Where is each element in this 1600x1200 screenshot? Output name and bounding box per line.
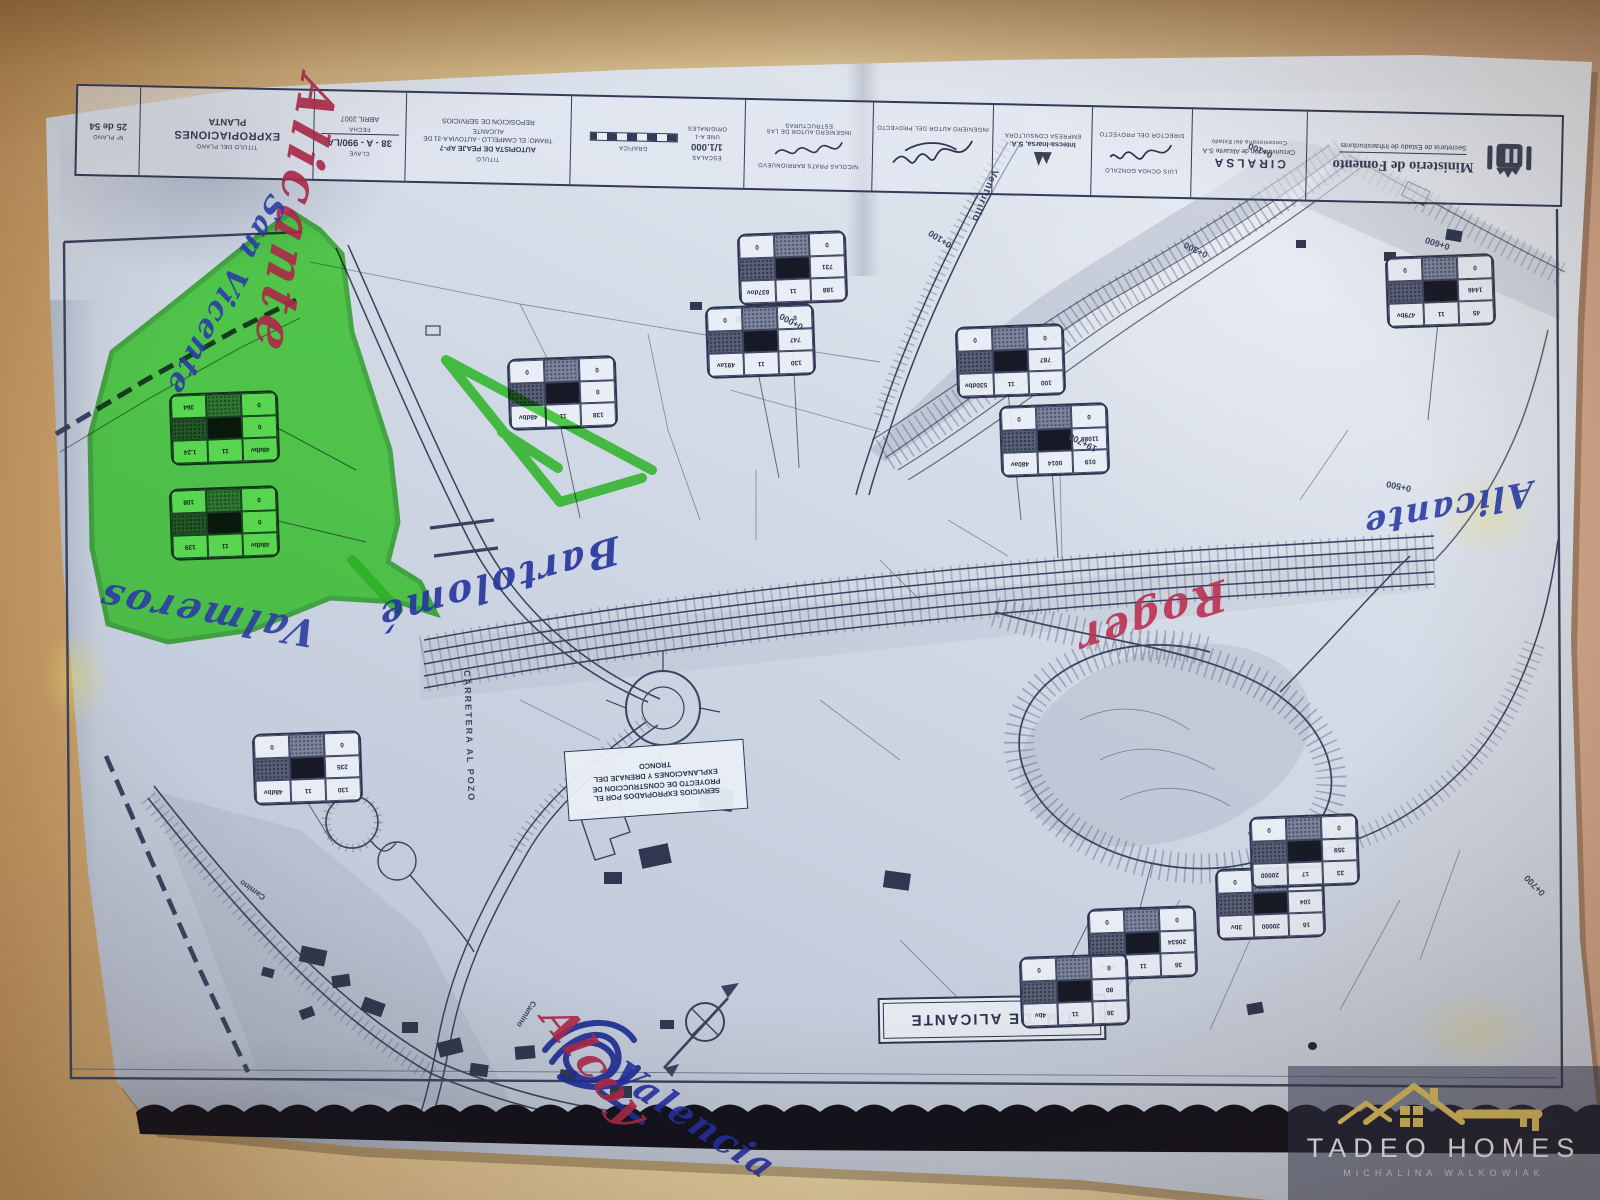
parcel-cell [1287, 839, 1323, 863]
parcel-cell: 491av [708, 353, 744, 377]
parcel-cell [1422, 256, 1458, 280]
parcel-cell [255, 757, 291, 781]
parcel-cell: 20634 [1160, 930, 1196, 954]
parcel-cell: 11 [775, 279, 811, 303]
project-line2: TRAMO: EL CAMPELLO - AUTOVIA A-31 DE ALI… [408, 125, 568, 144]
parcel-cell [743, 329, 779, 353]
parcel-cell: 36 [1092, 1000, 1128, 1024]
ministry-subtitle: Secretaría de Estado de Infraestructuras [1340, 140, 1466, 151]
parcel-cell: 48dbv [510, 405, 546, 429]
parcel-cell: 130 [325, 777, 361, 801]
parcel-cell [206, 393, 242, 417]
parcel-cell: 11 [207, 534, 243, 558]
parcel-cell: 139 [172, 535, 208, 559]
parcel-cell [544, 358, 580, 382]
parcel-cell [290, 756, 326, 780]
plan-title-line1: EXPROPIACIONES [174, 128, 280, 142]
structures-engineer-name: NICOLAS PRATS BARRIONUEVO [758, 161, 859, 169]
parcel-cell: 48dbv [255, 780, 291, 804]
project-line3: REPOSICION DE SERVICIOS [442, 115, 535, 125]
signature-structures [773, 135, 843, 160]
parcel-cell: 11 [1125, 954, 1161, 978]
parcel-cell [1057, 979, 1093, 1003]
parcel-cell: 480av [1002, 452, 1038, 476]
parcel-cell: 0 [1251, 818, 1287, 842]
parcel-cell [1423, 279, 1459, 303]
parcel-cell: 45 [1458, 300, 1494, 324]
date-label: FECHA [349, 126, 371, 132]
brand-name: TADEO HOMES [1307, 1134, 1582, 1164]
ministry-name: Ministerio de Fomento [1332, 156, 1473, 176]
parcel-cell: 11 [545, 404, 581, 428]
parcel-cell: 0 [579, 357, 615, 381]
author-role: INGENIERO AUTOR DEL PROYECTO [877, 124, 989, 132]
parcel-cell [545, 381, 581, 405]
spain-coat-of-arms-icon [1483, 137, 1536, 182]
director-name: LUIS OCHOA GONZALO [1105, 166, 1178, 174]
sheet-number-value: 25 de 54 [89, 121, 127, 133]
parcel-cell: 11 [290, 779, 326, 803]
parcel-cell: 0 [1089, 910, 1125, 934]
structures-engineer-role: INGENIERO AUTOR DE LAS ESTRUCTURAS [748, 121, 871, 136]
parcel-cell: 36 [1160, 952, 1196, 976]
parcel-cell: 479bv [1388, 303, 1424, 327]
parcel-cell [289, 733, 325, 757]
parcel-cell [1036, 405, 1072, 429]
parcel-cell: 48dbv [242, 437, 278, 461]
plan-title-label: TITULO DEL PLANO [196, 143, 257, 150]
parcel-cell [1125, 931, 1161, 955]
titleblock-consultant: Intecsa-Inarsa, S.A. EMPRESA CONSULTORA [991, 105, 1093, 195]
consultant-role: EMPRESA CONSULTORA [1004, 132, 1081, 140]
parcel-cell [992, 326, 1028, 350]
parcel-cell: 108 [171, 490, 207, 514]
parcel-cell [774, 233, 810, 257]
parcel-cell: 0 [1457, 255, 1493, 279]
parcel-cell [1022, 980, 1058, 1004]
parcel-cell: 747 [778, 328, 814, 352]
parcel-cell: 104 [1288, 890, 1324, 914]
parcel-cell: 0 [1321, 815, 1357, 839]
parcel-cell [740, 257, 776, 281]
scales-note2: ORIGINALES [687, 125, 727, 132]
parcel-cell: 0 [509, 360, 545, 384]
parcel-cell [206, 488, 242, 512]
parcel-cell: 100 [1028, 370, 1064, 394]
parcel-cell: 138 [580, 402, 616, 426]
parcel-cell: 0 [707, 308, 743, 332]
parcel-cell: 731 [810, 255, 846, 279]
parcel-cell [172, 417, 208, 441]
director-role: DIRECTOR DEL PROYECTO [1099, 130, 1184, 138]
parcel-table: 001446479bv1145 [1385, 253, 1496, 329]
dark-speck [1308, 1042, 1317, 1050]
parcel-cell: 0014 [1037, 451, 1073, 475]
parcel-cell: 11 [1057, 1002, 1093, 1026]
titleblock-scales: ESCALAS 1/1.000 UNE A-1 ORIGINALES GRAFI… [569, 96, 745, 188]
parcel-cell [708, 330, 744, 354]
parcel-cell: 0 [1159, 907, 1195, 931]
parcel-cell: 4bv [1022, 1003, 1058, 1027]
signature-author [889, 132, 976, 172]
scales-value: 1/1.000 [691, 141, 723, 153]
parcel-table: 108001391148dbv [169, 485, 280, 561]
parcel-cell: 0 [580, 380, 616, 404]
plan-title-line2: PLANTA [208, 116, 246, 128]
parcel-table: 00787530dbv11100 [955, 323, 1066, 399]
scales-note1: UNE A-1 [694, 133, 719, 140]
parcel-cell: 0 [254, 735, 290, 759]
parcel-cell: 11 [993, 372, 1029, 396]
parcel-cell [172, 512, 208, 536]
titleblock-project-author: INGENIERO AUTOR DEL PROYECTO [871, 103, 992, 193]
parcel-cell: 20000 [1253, 914, 1289, 938]
parcel-cell: 11 [207, 439, 243, 463]
parcel-cell [993, 349, 1029, 373]
parcel-cell [1002, 429, 1038, 453]
brand-subtitle: MICHALINA WALKOWIAK [1343, 1168, 1544, 1178]
signature-director [1108, 138, 1175, 165]
date-value: ABRIL 2007 [341, 115, 380, 125]
photo-scene: Nº PLANO 25 de 54 TITULO DEL PLANO EXPRO… [0, 0, 1600, 1200]
parcel-cell: 0 [242, 415, 278, 439]
parcel-cell [1252, 840, 1288, 864]
parcel-cell: 0 [1071, 404, 1107, 428]
titleblock-ministry: Ministerio de Fomento Secretaría de Esta… [1305, 112, 1562, 205]
parcel-cell: 48dbv [242, 532, 278, 556]
graphic-scale-bar [589, 132, 677, 143]
parcel-cell: 0 [1387, 258, 1423, 282]
parcel-cell: 11 [1423, 302, 1459, 326]
consultant-name: Intecsa-Inarsa, S.A. [1009, 140, 1075, 150]
parcel-cell [742, 306, 778, 330]
parcel-table: 00731637dov11188 [737, 230, 848, 306]
parcel-cell: 1446 [1458, 278, 1494, 302]
parcel-cell [775, 256, 811, 280]
services-note-box: SERVICIOS EXPROPIADOS POR EL PROYECTO DE… [564, 739, 748, 821]
parcel-cell [1286, 816, 1322, 840]
parcel-table: 00747491av11130 [705, 303, 816, 379]
parcel-cell: 637dov [740, 280, 776, 304]
parcel-cell: 0 [957, 328, 993, 352]
titleblock-director: LUIS OCHOA GONZALO DIRECTOR DEL PROYECTO [1090, 107, 1192, 197]
parcel-cell: 0 [241, 392, 277, 416]
parcel-cell: 17 [1287, 862, 1323, 886]
parcel-cell [510, 382, 546, 406]
parcel-cell [207, 511, 243, 535]
titleblock-ciralsa: CIRALSA Circunvalación de Alicante S.A C… [1190, 109, 1307, 199]
parcel-cell: 235 [325, 755, 361, 779]
graphic-scale-label: GRAFICA [618, 144, 647, 151]
parcel-cell: 0 [324, 732, 360, 756]
parcel-cell: 0 [242, 510, 278, 534]
parcel-cell: 019 [1072, 449, 1108, 473]
parcel-cell [958, 350, 994, 374]
intecsa-logo-icon [1031, 151, 1053, 167]
parcel-cell: 0 [1091, 955, 1127, 979]
parcel-cell: 16 [1288, 912, 1324, 936]
parcel-table: 00359200001733 [1249, 813, 1360, 889]
parcel-cell [1253, 891, 1289, 915]
parcel-cell: 787 [1028, 348, 1064, 372]
parcel-table: 0011088480av0014019 [999, 402, 1110, 478]
parcel-cell: 0 [739, 235, 775, 259]
titleblock-structures-engineer: NICOLAS PRATS BARRIONUEVO INGENIERO AUTO… [743, 100, 872, 191]
parcel-cell: 1.24 [172, 440, 208, 464]
parcel-cell: 80 [1092, 978, 1128, 1002]
titleblock-project: TITULO AUTOPISTA DE PEAJE AP-7 TRAMO: EL… [404, 93, 570, 184]
parcel-cell: 130 [778, 350, 814, 374]
brand-watermark: TADEO HOMES MICHALINA WALKOWIAK [1288, 1066, 1600, 1200]
house-key-icon [1332, 1072, 1556, 1134]
parcel-cell: 0 [809, 232, 845, 256]
parcel-table: 00804bv1136 [1019, 953, 1130, 1029]
parcel-cell [207, 416, 243, 440]
parcel-cell: 33 [1322, 860, 1358, 884]
project-line1: AUTOPISTA DE PEAJE AP-7 [440, 143, 536, 154]
sheet-number-label: Nº PLANO [93, 134, 124, 141]
parcel-cell [1218, 892, 1254, 916]
parcel-table: 0023548dbv11130 [252, 730, 363, 806]
parcel-cell: 20000 [1252, 863, 1288, 887]
parcel-cell [1124, 908, 1160, 932]
parcel-cell [1056, 956, 1092, 980]
code-label: CLAVE [349, 150, 370, 156]
ciralsa-name: CIRALSA [1211, 156, 1286, 172]
parcel-cell: 0 [1027, 325, 1063, 349]
project-label: TITULO [476, 155, 499, 161]
north-compass-icon [664, 983, 739, 1077]
parcel-cell: 359 [1322, 838, 1358, 862]
parcel-cell: 3bv [1218, 915, 1254, 939]
parcel-cell: 188 [810, 277, 846, 301]
parcel-cell: 11 [743, 352, 779, 376]
scales-label: ESCALAS [691, 154, 721, 161]
parcel-cell: 0 [1217, 870, 1253, 894]
parcel-cell: 530dbv [958, 373, 994, 397]
parcel-cell [1388, 280, 1424, 304]
parcel-cell: 0 [1021, 958, 1057, 982]
titleblock-sheet-number: Nº PLANO 25 de 54 [76, 86, 140, 175]
parcel-cell: 0 [1001, 407, 1037, 431]
parcel-table: 00048dbv11138 [507, 355, 618, 431]
parcel-cell: 0 [241, 487, 277, 511]
